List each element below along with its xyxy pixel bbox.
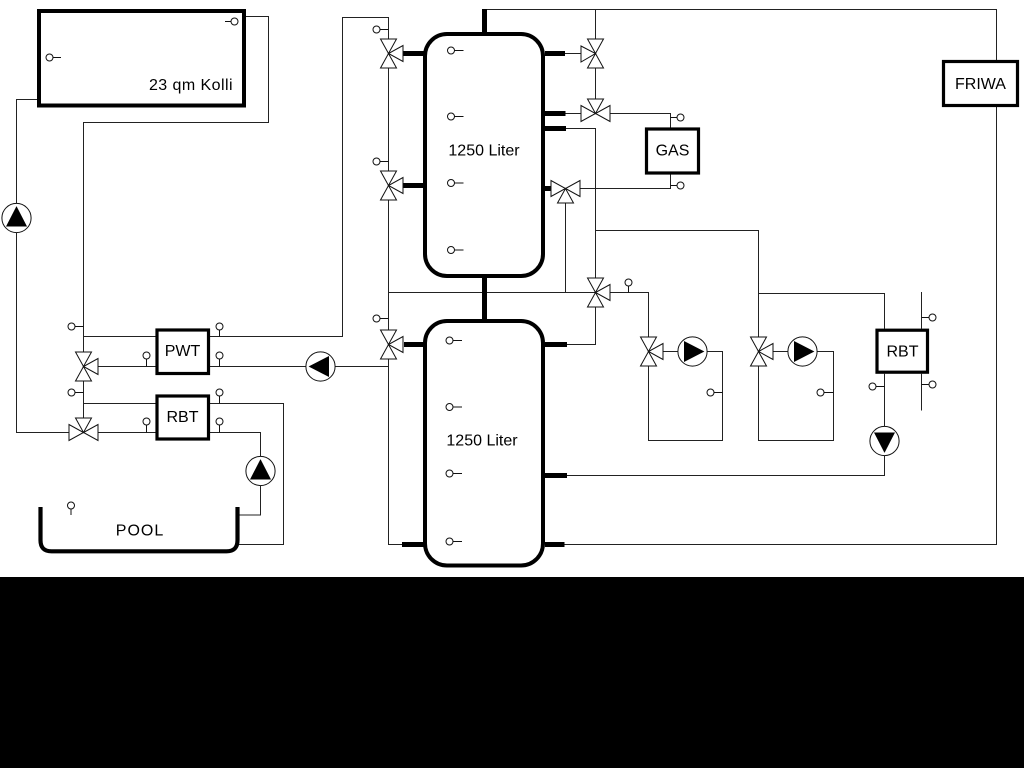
svg-text:FRIWA: FRIWA (955, 76, 1006, 93)
svg-text:GAS: GAS (656, 143, 690, 160)
svg-text:RBT: RBT (167, 409, 199, 426)
svg-text:23 qm Kolli: 23 qm Kolli (149, 77, 233, 94)
svg-text:POOL: POOL (116, 523, 164, 540)
svg-text:1250 Liter: 1250 Liter (446, 433, 518, 450)
svg-text:1250 Liter: 1250 Liter (448, 143, 520, 160)
svg-text:RBT: RBT (887, 344, 919, 361)
svg-text:PWT: PWT (165, 343, 201, 360)
